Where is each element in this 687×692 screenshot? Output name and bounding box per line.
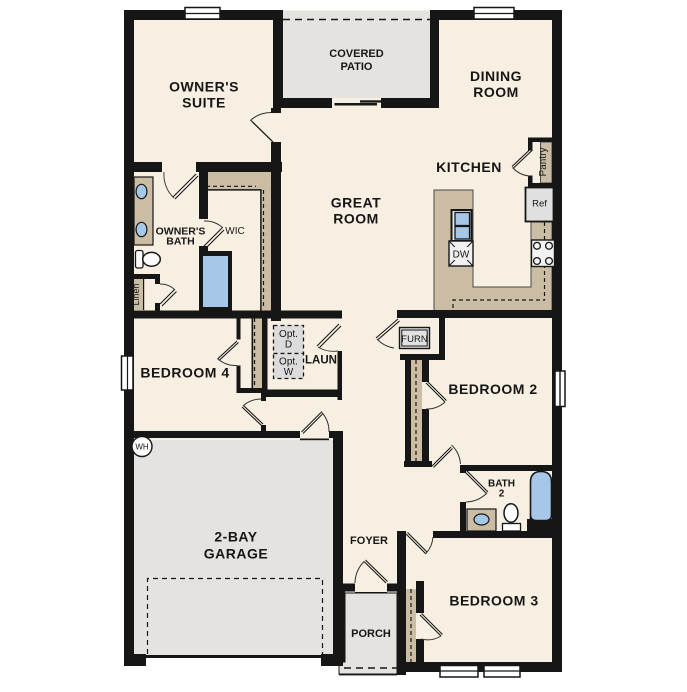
svg-text:BEDROOM 2: BEDROOM 2 [448,381,537,397]
svg-text:Linen: Linen [131,283,141,305]
svg-text:SUITE: SUITE [182,95,226,111]
svg-text:BEDROOM 4: BEDROOM 4 [140,365,229,381]
svg-text:Opt.: Opt. [279,329,298,340]
svg-text:WH: WH [135,443,149,452]
svg-text:DINING: DINING [470,68,522,84]
svg-text:GREAT: GREAT [331,195,381,211]
svg-text:BATH: BATH [166,236,194,248]
svg-text:FOYER: FOYER [350,535,388,547]
svg-text:DW: DW [453,250,470,261]
svg-text:WIC: WIC [225,226,244,237]
svg-text:PATIO: PATIO [341,61,373,73]
svg-text:ROOM: ROOM [473,84,519,100]
svg-text:ROOM: ROOM [333,211,379,227]
svg-text:Ref: Ref [532,199,547,210]
svg-text:BEDROOM 3: BEDROOM 3 [449,593,538,609]
svg-text:D: D [285,340,292,351]
svg-text:W: W [284,367,294,378]
svg-text:Opt.: Opt. [279,357,298,368]
svg-text:GARAGE: GARAGE [204,546,268,562]
svg-text:2-BAY: 2-BAY [214,529,257,545]
svg-text:2: 2 [499,489,505,500]
svg-text:COVERED: COVERED [329,48,383,60]
svg-text:Pantry: Pantry [538,148,549,177]
svg-text:OWNER'S: OWNER'S [169,79,239,95]
svg-text:FURN: FURN [401,334,428,345]
svg-text:LAUN: LAUN [305,355,337,367]
svg-text:KITCHEN: KITCHEN [436,159,502,175]
svg-text:PORCH: PORCH [351,628,391,640]
